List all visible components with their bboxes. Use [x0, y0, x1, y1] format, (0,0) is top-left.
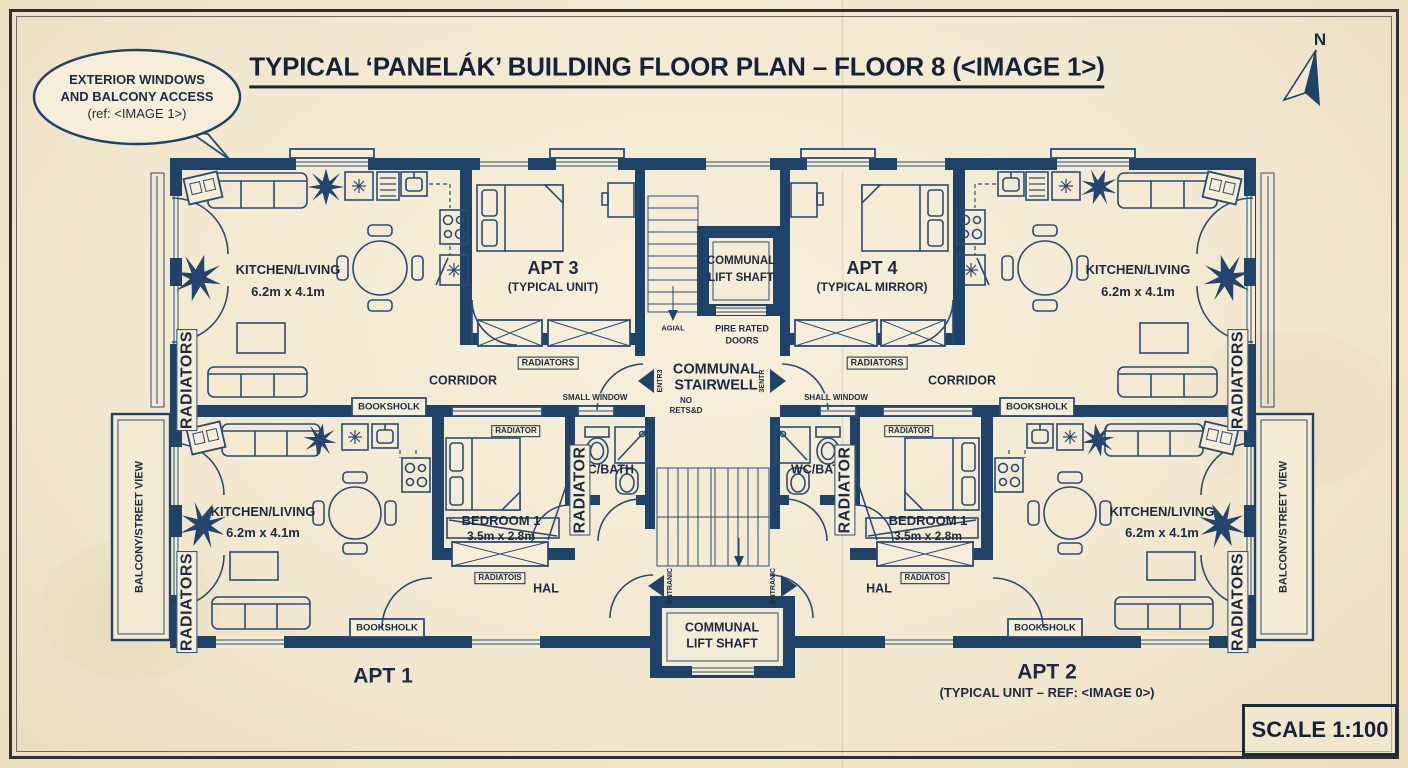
stairwell-entry-label-right: 3ENTR: [759, 370, 767, 393]
wall-tag: RADIATORS: [1227, 551, 1248, 653]
callout-line1: EXTERIOR WINDOWS: [69, 72, 205, 88]
lift-top-line2: LIFT SHAFT: [708, 272, 774, 286]
apt3-label: APT 3: [527, 258, 578, 280]
north-label: N: [1314, 30, 1326, 50]
room-bedroom-right: BEDROOM 1: [889, 513, 968, 529]
bookshelf-label-bl: BOOKSHOLK: [356, 622, 418, 633]
room-bedroom-left: BEDROOM 1: [462, 513, 541, 529]
room-kl-bl: KITCHEN/LIVING: [211, 504, 316, 520]
callout-line2: AND BALCONY ACCESS: [60, 89, 213, 105]
apt4-subtitle: (TYPICAL MIRROR): [816, 280, 927, 294]
no-retsgd-line2: RETS&D: [670, 406, 703, 416]
small-window-label: SMALL WINDOW: [561, 393, 630, 403]
lift-top-line1: COMMUNAL: [707, 255, 775, 269]
wall-tag: RADIATORS: [176, 551, 197, 653]
radiators-label-right: RADIATORS: [847, 357, 908, 370]
radiator-label-left: RADIATOR: [491, 425, 540, 437]
wall-tag: RADIATORS: [1227, 329, 1248, 431]
radiatos-label: RADIATOS: [900, 572, 949, 584]
wall-tag: RADIATORS: [176, 329, 197, 431]
room-hal-right: HAL: [866, 582, 892, 597]
exterior-windows: [170, 149, 1255, 648]
wall-tag-wc-right: RADIATOR: [834, 445, 855, 536]
radiators-label-left: RADIATORS: [518, 357, 579, 370]
plant-icons: [169, 163, 1257, 555]
fire-doors-line2: DOORS: [725, 336, 758, 347]
lift-bottom-line1: COMMUNAL: [685, 621, 759, 636]
drawing-title: TYPICAL ‘PANELÁK’ BUILDING FLOOR PLAN – …: [249, 51, 1104, 88]
no-retsgd-line1: NO: [680, 396, 692, 406]
room-corridor-left: CORRIDOR: [429, 374, 497, 389]
stairwell-entry-label-left: ENTR3: [657, 370, 665, 393]
entrance-label-left: ENTRANIC: [667, 568, 675, 604]
apt3-subtitle: (TYPICAL UNIT): [508, 280, 598, 294]
radiator-label-right: RADIATOR: [884, 425, 933, 437]
stairs-top: [648, 196, 698, 321]
scale-box: SCALE 1:100: [1242, 704, 1398, 756]
bookshelf-label-tl: BOOKSHOLK: [358, 401, 420, 412]
callout-line3: (ref: <IMAGE 1>): [88, 106, 187, 122]
balcony-label-right: BALCONY/STREET VIEW: [1277, 461, 1290, 593]
bookshelf-label-tr: BOOKSHOLK: [1006, 401, 1068, 412]
room-kl-br: KITCHEN/LIVING: [1110, 504, 1215, 520]
room-bedroom-right-dim: 3.5m x 2.8m: [894, 529, 962, 543]
room-kl-br-dim: 6.2m x 4.1m: [1125, 525, 1199, 541]
apt2-label: APT 2: [1017, 659, 1077, 684]
blueprint-page: TYPICAL ‘PANELÁK’ BUILDING FLOOR PLAN – …: [0, 0, 1408, 768]
furniture-apt4: [791, 183, 948, 251]
furniture-apt3: [477, 183, 634, 251]
callout-bubble: [34, 50, 240, 160]
stairwell-line1: COMMUNAL: [673, 361, 759, 378]
shall-window-label: SHALL WINDOW: [802, 393, 870, 403]
wall-tag-wc-left: RADIATOR: [569, 445, 590, 536]
bookshelf-label-br: BOOKSHOLK: [1014, 622, 1076, 633]
room-kl-tr: KITCHEN/LIVING: [1086, 262, 1191, 278]
stairwell-line2: STAIRWELL: [674, 377, 757, 394]
apt1-label: APT 1: [353, 663, 413, 688]
entrance-label-right: ENTRANIC: [770, 568, 778, 604]
balcony-label-left: BALCONY/STREET VIEW: [133, 461, 146, 593]
radiatois-label: RADIATOIS: [474, 572, 525, 584]
room-kl-tl-dim: 6.2m x 4.1m: [251, 284, 325, 300]
room-kl-tl: KITCHEN/LIVING: [236, 262, 341, 278]
fire-doors-line1: PIRE RATED: [715, 324, 769, 335]
furniture-kl-top-left: [208, 172, 468, 397]
room-corridor-right: CORRIDOR: [928, 374, 996, 389]
lift-bottom-line2: LIFT SHAFT: [686, 637, 758, 652]
apt4-label: APT 4: [846, 258, 897, 280]
lift-shaft-top: [697, 226, 785, 316]
room-kl-tr-dim: 6.2m x 4.1m: [1101, 284, 1175, 300]
room-kl-bl-dim: 6.2m x 4.1m: [226, 525, 300, 541]
furniture-kl-top-right: [957, 172, 1217, 397]
stairs-bottom: [657, 468, 769, 567]
room-bedroom-left-dim: 3.5m x 2.8m: [467, 529, 535, 543]
stair-direction-label: AGIAL: [661, 324, 684, 333]
apt2-subtitle: (TYPICAL UNIT – REF: <IMAGE 0>): [939, 685, 1154, 701]
room-hal-left: HAL: [533, 582, 559, 597]
north-arrow-icon: [1284, 50, 1320, 106]
